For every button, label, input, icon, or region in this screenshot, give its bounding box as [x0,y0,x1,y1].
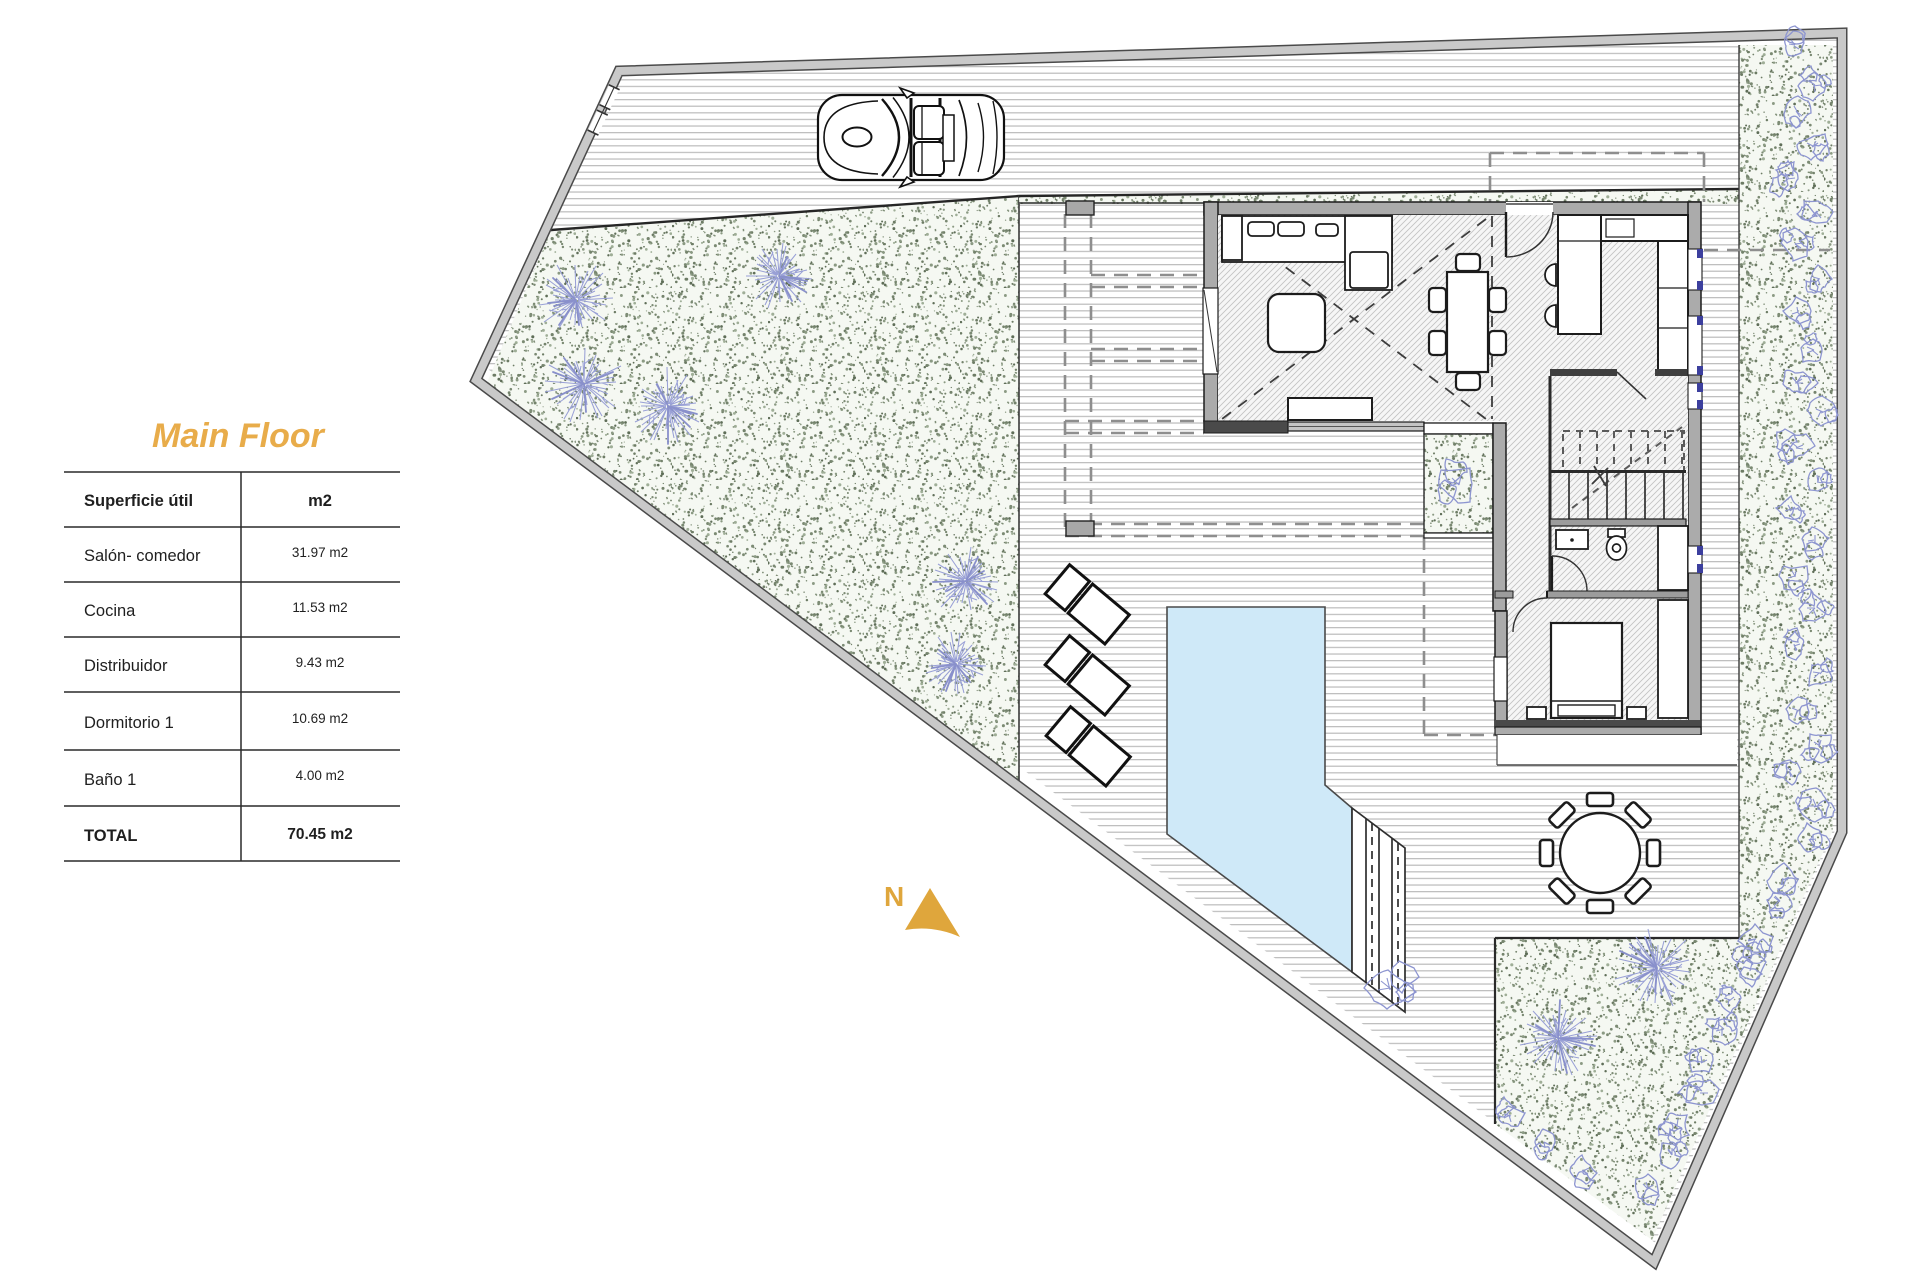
svg-text:Cocina: Cocina [84,602,136,620]
svg-text:N: N [884,881,904,912]
svg-text:31.97 m2: 31.97 m2 [292,545,348,560]
svg-text:Main Floor: Main Floor [152,417,326,455]
svg-text:Salón- comedor: Salón- comedor [84,547,201,565]
svg-text:4.00 m2: 4.00 m2 [296,768,345,783]
svg-text:10.69 m2: 10.69 m2 [292,711,348,726]
svg-text:9.43 m2: 9.43 m2 [296,655,345,670]
svg-text:70.45 m2: 70.45 m2 [287,826,353,843]
svg-text:Baño 1: Baño 1 [84,771,136,789]
svg-text:11.53 m2: 11.53 m2 [292,600,347,615]
svg-text:Distribuidor: Distribuidor [84,657,168,675]
svg-text:Dormitorio 1: Dormitorio 1 [84,714,174,732]
svg-text:TOTAL: TOTAL [84,827,137,845]
svg-text:Superficie útil: Superficie útil [84,492,193,510]
svg-text:m2: m2 [308,492,332,510]
